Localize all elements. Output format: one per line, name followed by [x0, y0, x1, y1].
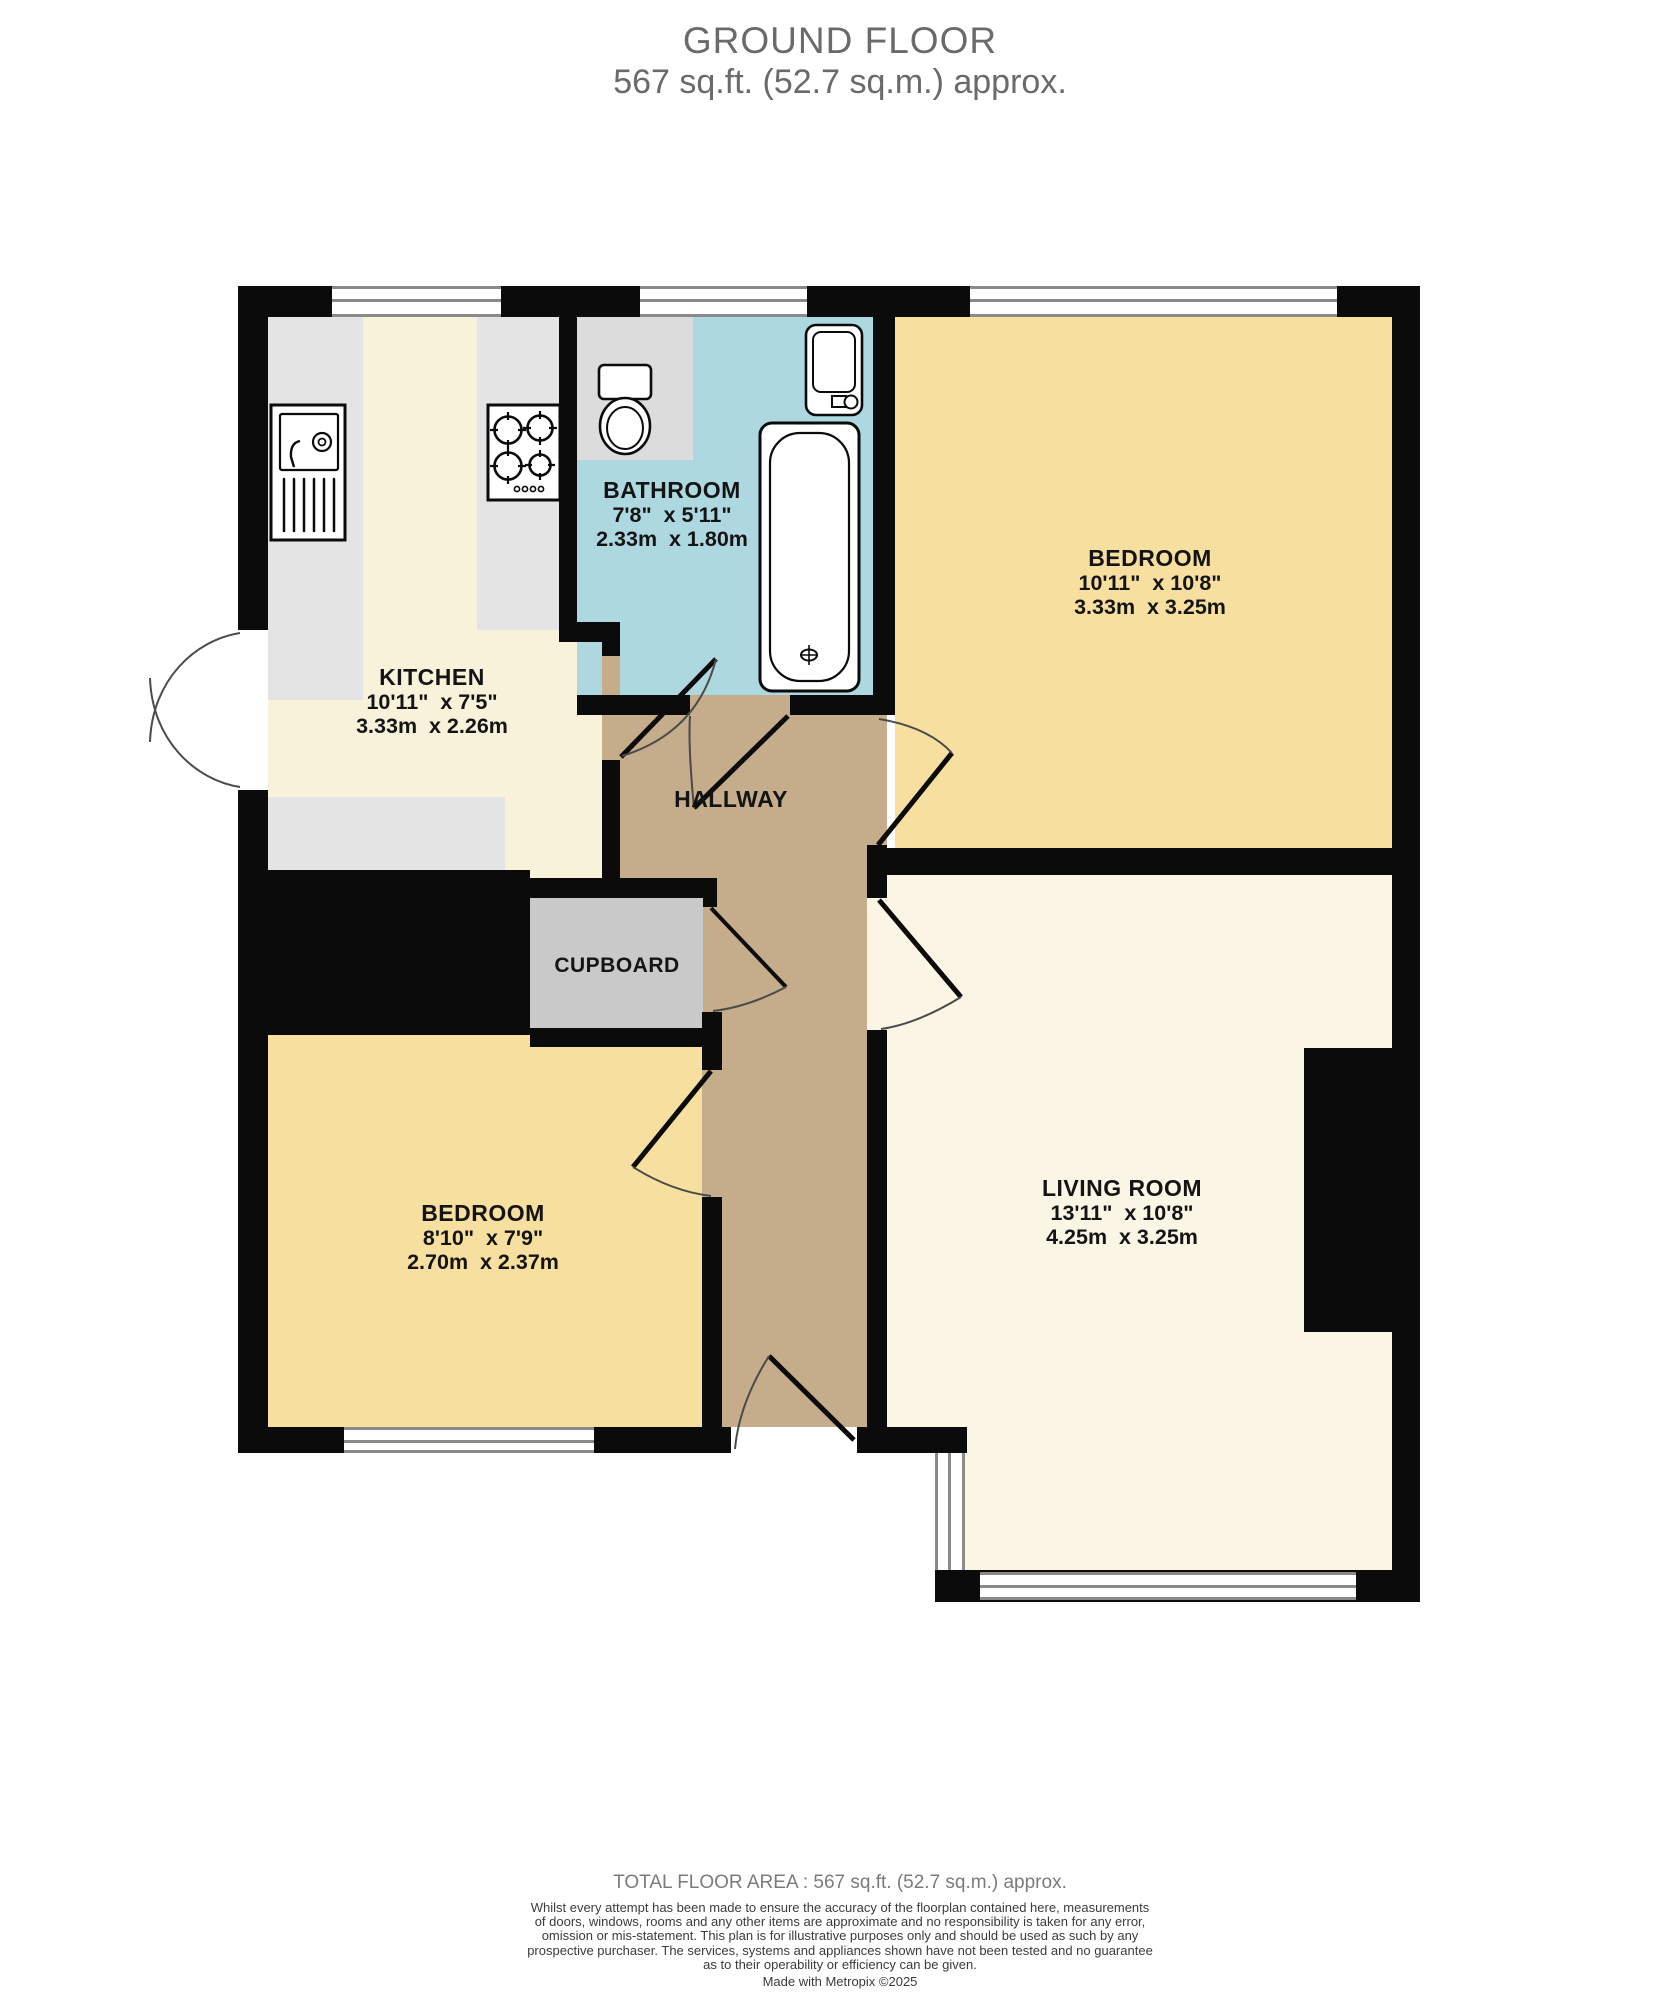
page-title: GROUND FLOOR — [0, 20, 1680, 62]
bedroom-1-door — [878, 719, 952, 845]
living-room-label: LIVING ROOM 13'11" x 10'8" 4.25m x 3.25m — [972, 1175, 1272, 1249]
entrance-door-arcs — [150, 633, 240, 787]
room-dims-imperial: 13'11" x 10'8" — [972, 1201, 1272, 1225]
bedroom-2-label: BEDROOM 8'10" x 7'9" 2.70m x 2.37m — [333, 1200, 633, 1274]
room-name: LIVING ROOM — [972, 1175, 1272, 1201]
living-room-door — [879, 900, 961, 1029]
front-door — [735, 1356, 854, 1449]
room-dims-imperial: 7'8" x 5'11" — [522, 503, 822, 527]
bedroom-1-label: BEDROOM 10'11" x 10'8" 3.33m x 3.25m — [1000, 545, 1300, 619]
room-dims-metric: 2.33m x 1.80m — [522, 527, 822, 551]
room-dims-metric: 3.33m x 2.26m — [282, 714, 582, 738]
room-name: BEDROOM — [333, 1200, 633, 1226]
washbasin-icon — [806, 325, 862, 415]
disclaimer-text: Whilst every attempt has been made to en… — [0, 1901, 1680, 1972]
room-dims-metric: 2.70m x 2.37m — [333, 1250, 633, 1274]
toilet-icon — [599, 365, 651, 454]
room-name: KITCHEN — [282, 664, 582, 690]
room-dims-imperial: 10'11" x 7'5" — [282, 690, 582, 714]
kitchen-label: KITCHEN 10'11" x 7'5" 3.33m x 2.26m — [282, 664, 582, 738]
cupboard-door — [711, 908, 786, 1011]
room-name: BEDROOM — [1000, 545, 1300, 571]
hallway-label: HALLWAY — [581, 786, 881, 812]
room-name: CUPBOARD — [517, 953, 717, 979]
kitchen-sink-icon — [271, 405, 345, 540]
room-dims-imperial: 10'11" x 10'8" — [1000, 571, 1300, 595]
room-dims-imperial: 8'10" x 7'9" — [333, 1226, 633, 1250]
total-floor-area: TOTAL FLOOR AREA : 567 sq.ft. (52.7 sq.m… — [0, 1872, 1680, 1894]
metropix-credit: Made with Metropix ©2025 — [0, 1974, 1680, 1989]
bedroom-2-door — [633, 1071, 711, 1196]
cupboard-label: CUPBOARD — [517, 953, 717, 979]
page-subtitle: 567 sq.ft. (52.7 sq.m.) approx. — [0, 63, 1680, 102]
room-dims-metric: 4.25m x 3.25m — [972, 1225, 1272, 1249]
room-name: BATHROOM — [522, 477, 822, 503]
plan-overlay — [0, 0, 1680, 2000]
bathroom-label: BATHROOM 7'8" x 5'11" 2.33m x 1.80m — [522, 477, 822, 551]
floorplan-page: { "header": { "title": "GROUND FLOOR", "… — [0, 0, 1680, 2000]
kitchen-door — [621, 659, 716, 757]
bathtub-icon — [760, 423, 859, 691]
room-name: HALLWAY — [581, 786, 881, 812]
room-dims-metric: 3.33m x 3.25m — [1000, 595, 1300, 619]
